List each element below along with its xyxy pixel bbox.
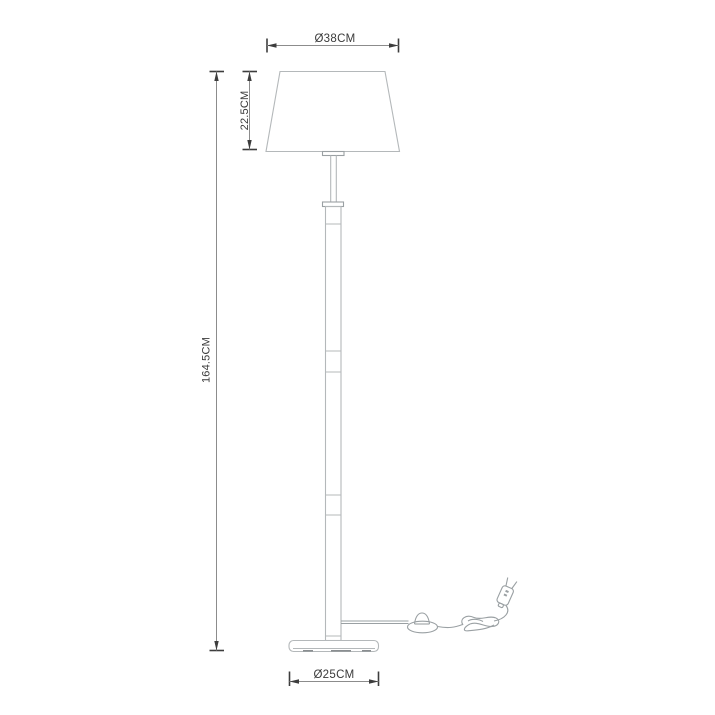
dimension-diagram: Ø38CM 22.5CM 164.5CM Ø25CM [0, 0, 715, 715]
dim-total-height: 164.5CM [201, 72, 225, 651]
lamp-shade [266, 72, 400, 152]
dim-shade-diameter: Ø38CM [267, 33, 399, 53]
dim-shade-height: 22.5CM [239, 72, 257, 150]
label-base-diameter: Ø25CM [313, 669, 354, 681]
dim-base-diameter: Ø25CM [290, 669, 379, 686]
label-total-height: 164.5CM [201, 337, 213, 383]
label-shade-diameter: Ø38CM [314, 33, 355, 45]
lamp-pole [326, 207, 342, 641]
power-plug [495, 577, 518, 609]
cord-bundle [462, 616, 499, 631]
lamp-stem [323, 152, 345, 207]
lamp-base [289, 641, 379, 652]
floor-lamp-drawing: Ø38CM 22.5CM 164.5CM Ø25CM [0, 0, 715, 715]
label-shade-height: 22.5CM [239, 91, 251, 131]
foot-switch [408, 613, 438, 633]
